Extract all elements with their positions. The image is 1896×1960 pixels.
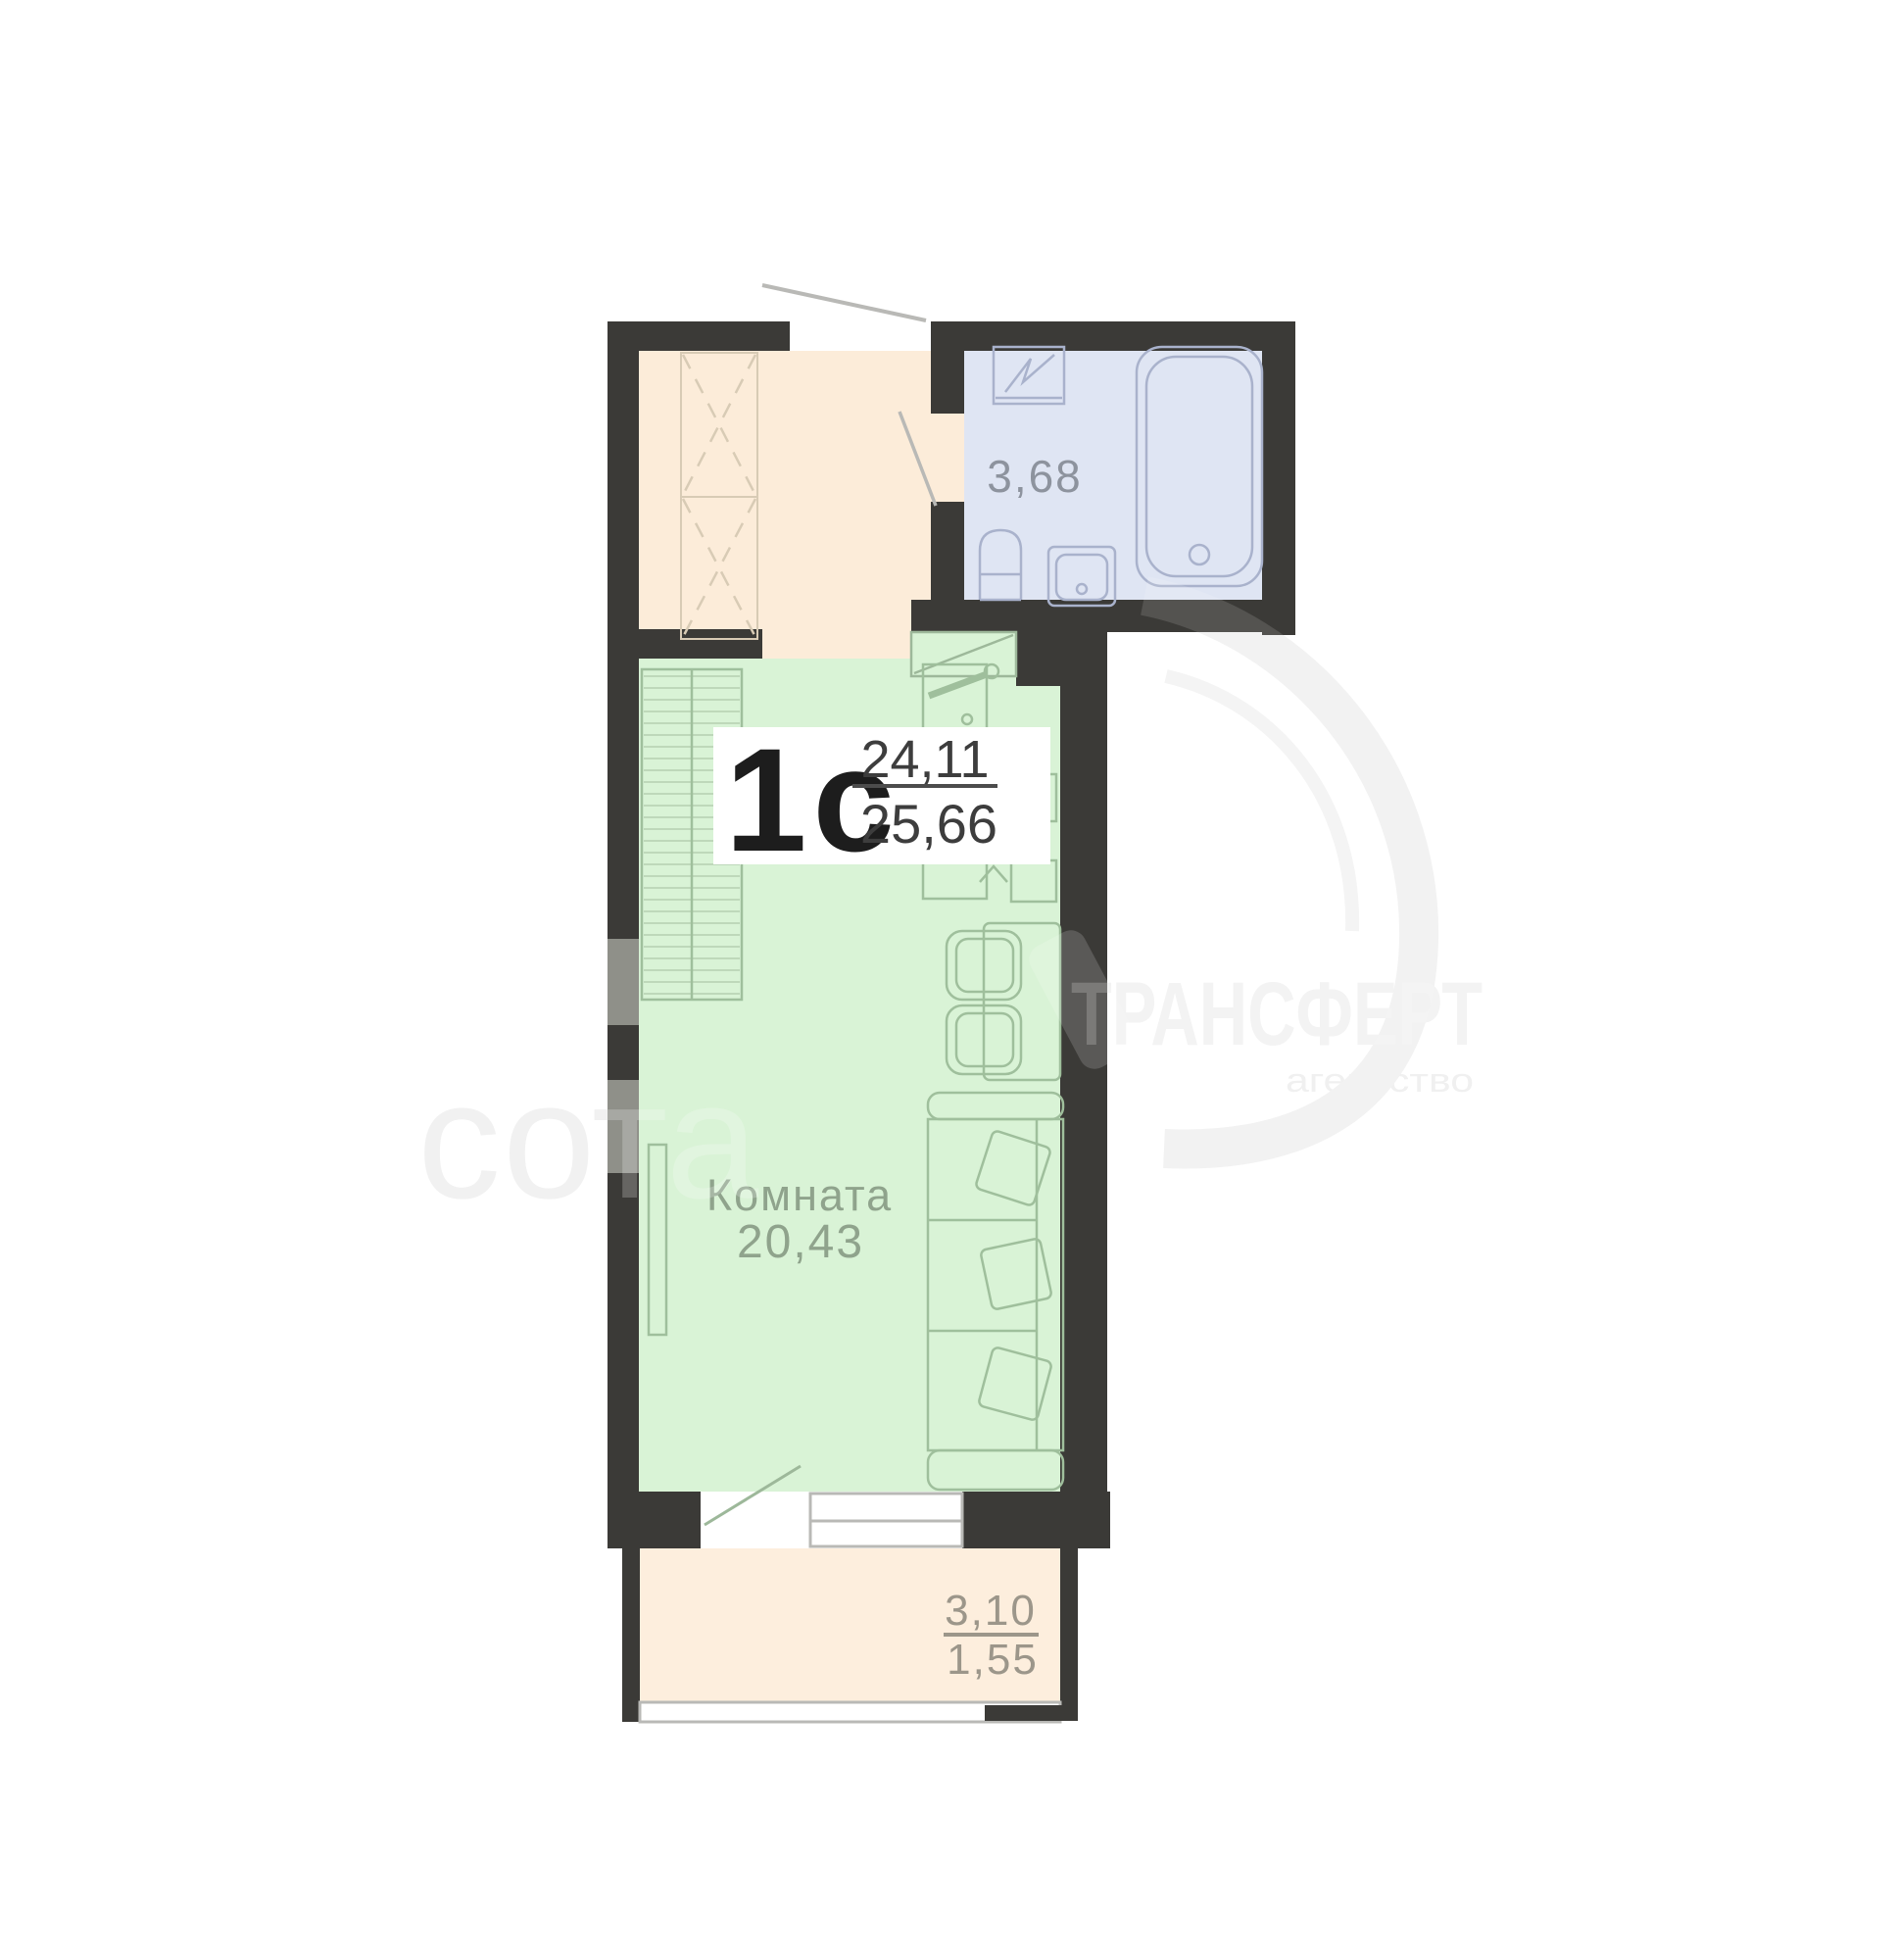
bathroom-area-label: 3,68 xyxy=(987,451,1083,502)
balcony-label: 3,10 1,55 xyxy=(944,1587,1039,1684)
storage-niche xyxy=(911,632,1016,676)
wall-balcony-left xyxy=(622,1548,640,1722)
wall-niche-right-block xyxy=(1016,632,1107,686)
balcony-area-half: 1,55 xyxy=(947,1636,1039,1684)
wall-room-bottom-right xyxy=(962,1492,1110,1548)
wall-bath-right xyxy=(1262,321,1295,635)
unit-total-area: 25,66 xyxy=(860,793,997,855)
hallway-floor xyxy=(639,351,931,659)
wall-room-right xyxy=(1060,686,1107,1492)
unit-living-area: 24,11 xyxy=(860,730,989,789)
wall-room-bottom-left xyxy=(608,1492,701,1548)
floor-plan-canvas: ТРАНСФЕРТ агентство сота xyxy=(0,0,1896,1960)
fraction-line xyxy=(852,784,997,788)
wall-balcony-right xyxy=(1060,1548,1078,1720)
entry-door-leaf xyxy=(762,285,926,320)
wall-bath-left-lower xyxy=(931,502,964,600)
wall-hall-left xyxy=(608,321,639,659)
watermark-brand-text-overlay: ТРАНСФЕРТ xyxy=(1071,964,1483,1064)
floor-plan-page: ТРАНСФЕРТ агентство сота xyxy=(0,0,1896,1960)
bathroom-doorway-floor xyxy=(931,414,964,502)
watermark-logo-text-overlay: сота xyxy=(417,1048,759,1234)
window-left-upper xyxy=(608,939,639,1025)
balcony-area-full: 3,10 xyxy=(945,1587,1037,1635)
wall-balcony-bottom-stub xyxy=(985,1705,1078,1721)
room-bottom-window xyxy=(810,1494,962,1546)
wall-bath-left-upper xyxy=(931,351,964,414)
unit-label-card: 1с 24,11 25,66 xyxy=(713,717,1050,882)
